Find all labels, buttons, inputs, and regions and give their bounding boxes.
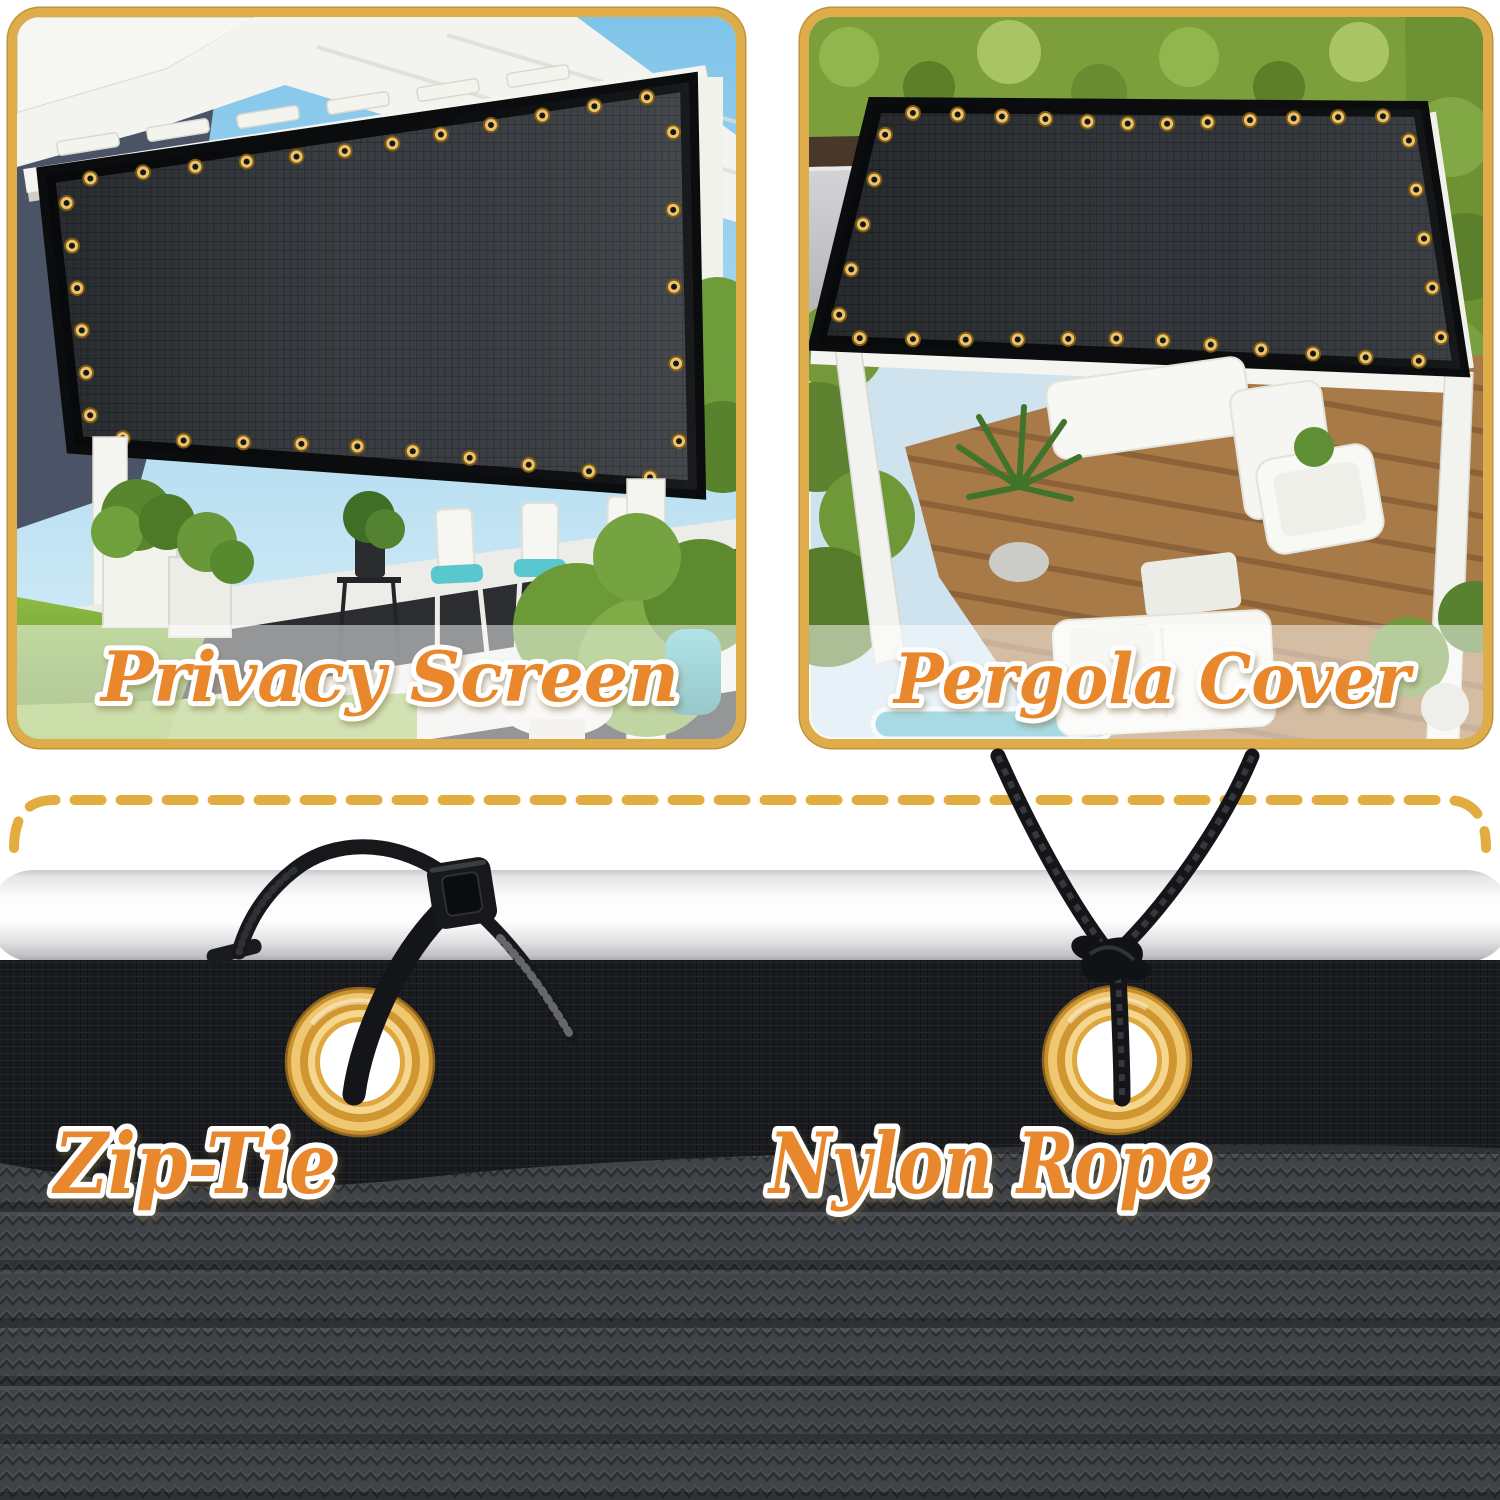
zip-tie-label: Zip-Tie: [51, 1114, 336, 1213]
pergola-cover-label: Pergola Cover: [892, 639, 1414, 720]
pergola-cover-fabric: [817, 105, 1461, 369]
privacy-screen-photo: Privacy Screen: [17, 17, 736, 739]
product-infographic: Privacy Screen: [0, 0, 1500, 1500]
mounting-section: Zip-Tie Nylon Rope: [0, 748, 1500, 1500]
dashed-border: [14, 800, 1486, 848]
privacy-screen-panel: Privacy Screen: [8, 8, 745, 748]
privacy-screen-label: Privacy Screen: [99, 637, 679, 718]
nylon-rope-label: Nylon Rope: [767, 1114, 1211, 1213]
pergola-cover-photo: Pergola Cover: [809, 17, 1483, 739]
mounting-photo: Zip-Tie Nylon Rope: [0, 748, 1500, 1500]
pergola-cover-panel: Pergola Cover: [800, 8, 1492, 748]
